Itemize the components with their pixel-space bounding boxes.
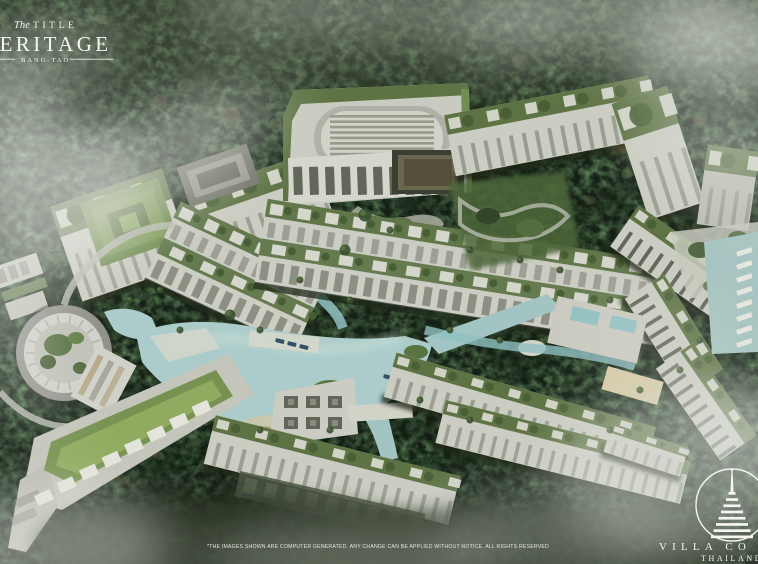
- svg-text:The: The: [14, 20, 30, 31]
- svg-text:TITLE: TITLE: [33, 21, 77, 31]
- svg-text:THAILAND: THAILAND: [701, 554, 758, 563]
- svg-text:*THE IMAGES SHOWN ARE COMPUTER: *THE IMAGES SHOWN ARE COMPUTER GENERATED…: [207, 544, 549, 550]
- svg-text:BANG-TAO: BANG-TAO: [21, 57, 70, 64]
- svg-text:VILLA CO: VILLA CO: [659, 541, 751, 553]
- svg-text:HERITAGE: HERITAGE: [0, 32, 112, 56]
